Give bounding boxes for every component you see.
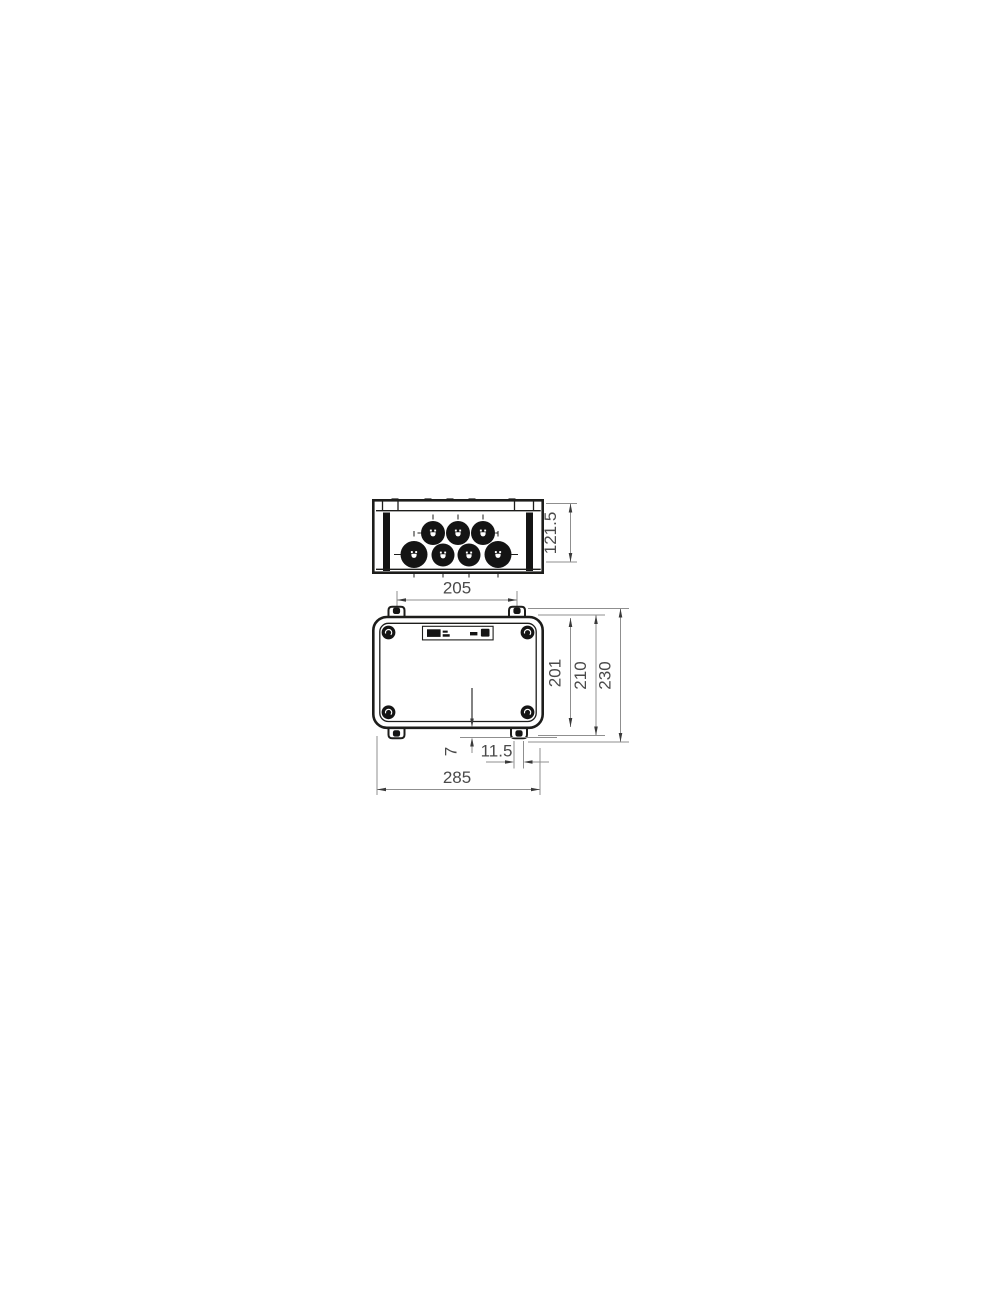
knockout [471,521,495,545]
dim-overall-height: 230 [596,609,623,743]
dim-label-inner-height: 201 [546,659,565,687]
certification-mark [470,632,477,635]
certification-mark [481,629,490,637]
dim-inner-height: 201 [546,618,573,727]
knockout [421,521,445,545]
dim-slot-width: 11.5 [481,741,549,769]
drawing-page: 121.5 205 [0,0,1000,1300]
knockout [401,541,428,568]
dim-overall-width: 285 [377,736,540,795]
knockout [458,544,481,567]
dim-label-depth: 121.5 [541,512,560,555]
right-wall-strip [526,513,533,572]
dim-mid-height: 210 [571,615,598,736]
dim-label-overall-width: 285 [443,768,471,787]
top-view [373,498,542,577]
knockout [485,541,512,568]
brand-logo-mark [427,629,441,637]
technical-drawing-canvas: 121.5 205 [0,0,1000,1300]
knockout [432,544,455,567]
dim-label-overall-height: 230 [596,661,615,689]
dim-label-tab-protrusion: 7 [442,747,461,756]
rating-label [423,626,494,640]
dim-mounting-spacing: 205 [397,579,517,608]
screw-icon [521,705,535,719]
screw-icon [382,705,396,719]
screw-icon [382,626,396,640]
left-wall-strip [383,513,390,572]
dim-label-mounting-spacing: 205 [443,579,471,598]
dim-depth: 121.5 [541,504,577,563]
dim-label-slot-width: 11.5 [481,742,513,761]
knockout [446,521,470,545]
screw-icon [521,626,535,640]
dim-label-mid-height: 210 [571,661,590,689]
front-view [373,607,542,739]
